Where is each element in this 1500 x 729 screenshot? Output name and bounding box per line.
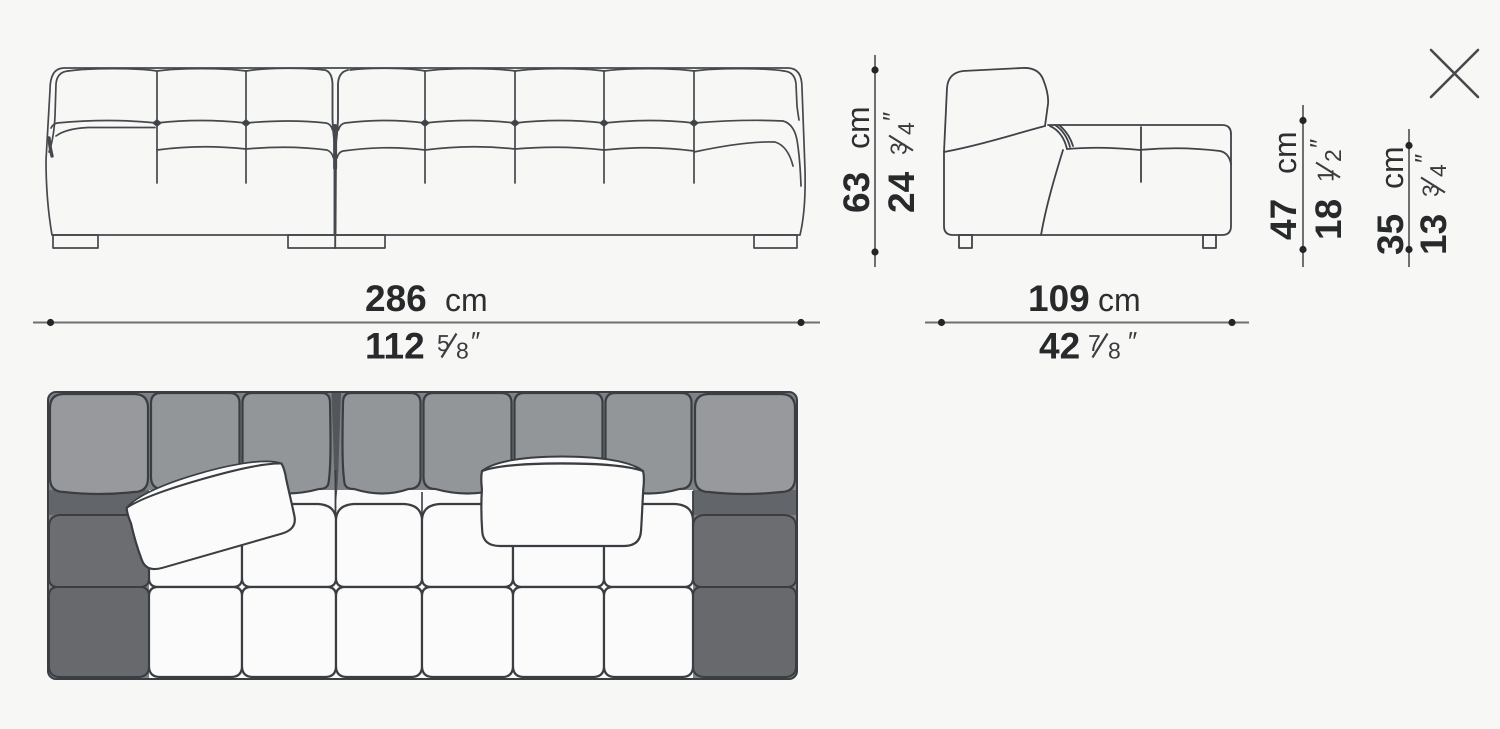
- svg-text:7: 7: [1088, 330, 1101, 356]
- svg-text:″: ″: [471, 326, 480, 356]
- svg-text:cm: cm: [1267, 131, 1303, 174]
- svg-text:″: ″: [1128, 326, 1137, 356]
- svg-text:35: 35: [1370, 214, 1411, 255]
- svg-text:cm: cm: [1374, 146, 1410, 189]
- svg-text:18: 18: [1308, 199, 1349, 240]
- svg-text:″: ″: [1409, 154, 1439, 163]
- svg-text:cm: cm: [840, 106, 876, 149]
- svg-text:cm: cm: [1098, 282, 1141, 318]
- svg-text:3: 3: [1418, 184, 1444, 197]
- svg-text:″: ″: [1304, 139, 1334, 148]
- svg-text:24: 24: [881, 171, 922, 213]
- svg-text:8: 8: [1108, 338, 1121, 364]
- svg-text:4: 4: [1425, 164, 1451, 177]
- svg-text:3: 3: [886, 142, 912, 155]
- svg-text:42: 42: [1039, 326, 1080, 367]
- svg-text:13: 13: [1413, 214, 1454, 255]
- svg-text:5: 5: [437, 330, 450, 356]
- svg-text:109: 109: [1028, 278, 1090, 319]
- svg-text:47: 47: [1263, 199, 1304, 240]
- svg-text:286: 286: [365, 278, 427, 319]
- svg-text:112: 112: [365, 326, 425, 367]
- svg-text:cm: cm: [445, 282, 488, 318]
- svg-text:8: 8: [456, 338, 469, 364]
- svg-text:63: 63: [836, 172, 877, 213]
- svg-text:1: 1: [1313, 169, 1339, 182]
- svg-text:″: ″: [877, 112, 907, 121]
- svg-text:4: 4: [893, 122, 919, 135]
- svg-text:2: 2: [1320, 149, 1346, 162]
